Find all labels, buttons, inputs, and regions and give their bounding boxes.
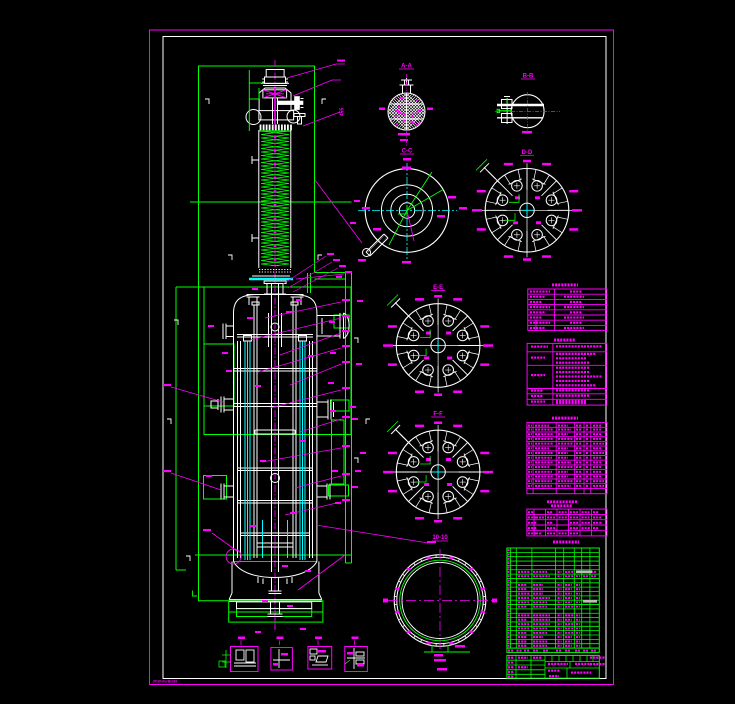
svg-text:455: 455: [340, 108, 346, 117]
svg-text:10-10: 10-10: [432, 535, 448, 541]
svg-text:JP.WnterBid86: JP.WnterBid86: [153, 680, 178, 684]
